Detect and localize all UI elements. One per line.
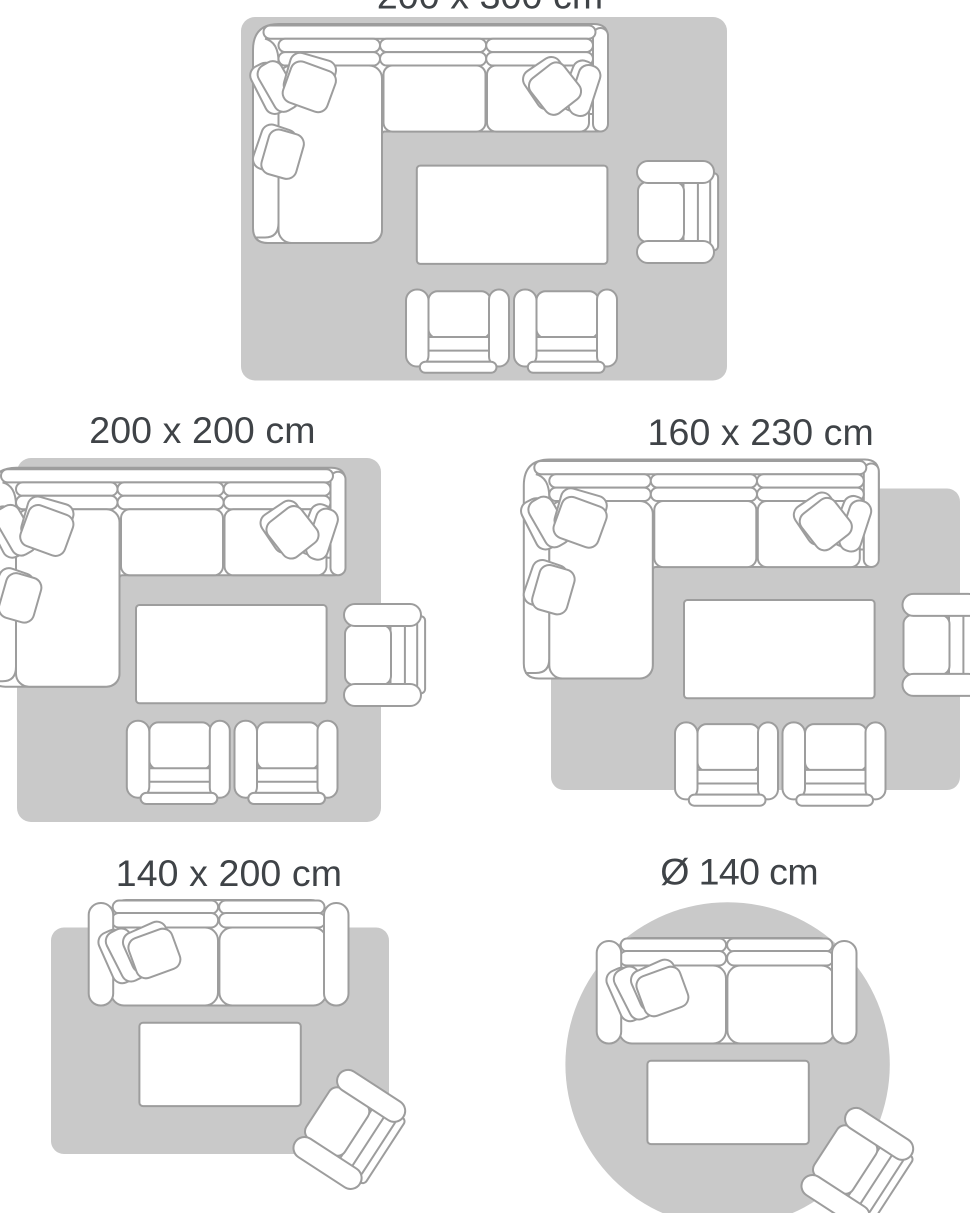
svg-text:Ø 140 cm: Ø 140 cm xyxy=(660,851,818,893)
svg-text:160 x 230 cm: 160 x 230 cm xyxy=(648,411,874,453)
svg-text:140 x 200 cm: 140 x 200 cm xyxy=(116,852,342,894)
svg-text:200 x 200 cm: 200 x 200 cm xyxy=(89,409,315,451)
svg-text:200 x 300 cm: 200 x 300 cm xyxy=(377,0,603,17)
